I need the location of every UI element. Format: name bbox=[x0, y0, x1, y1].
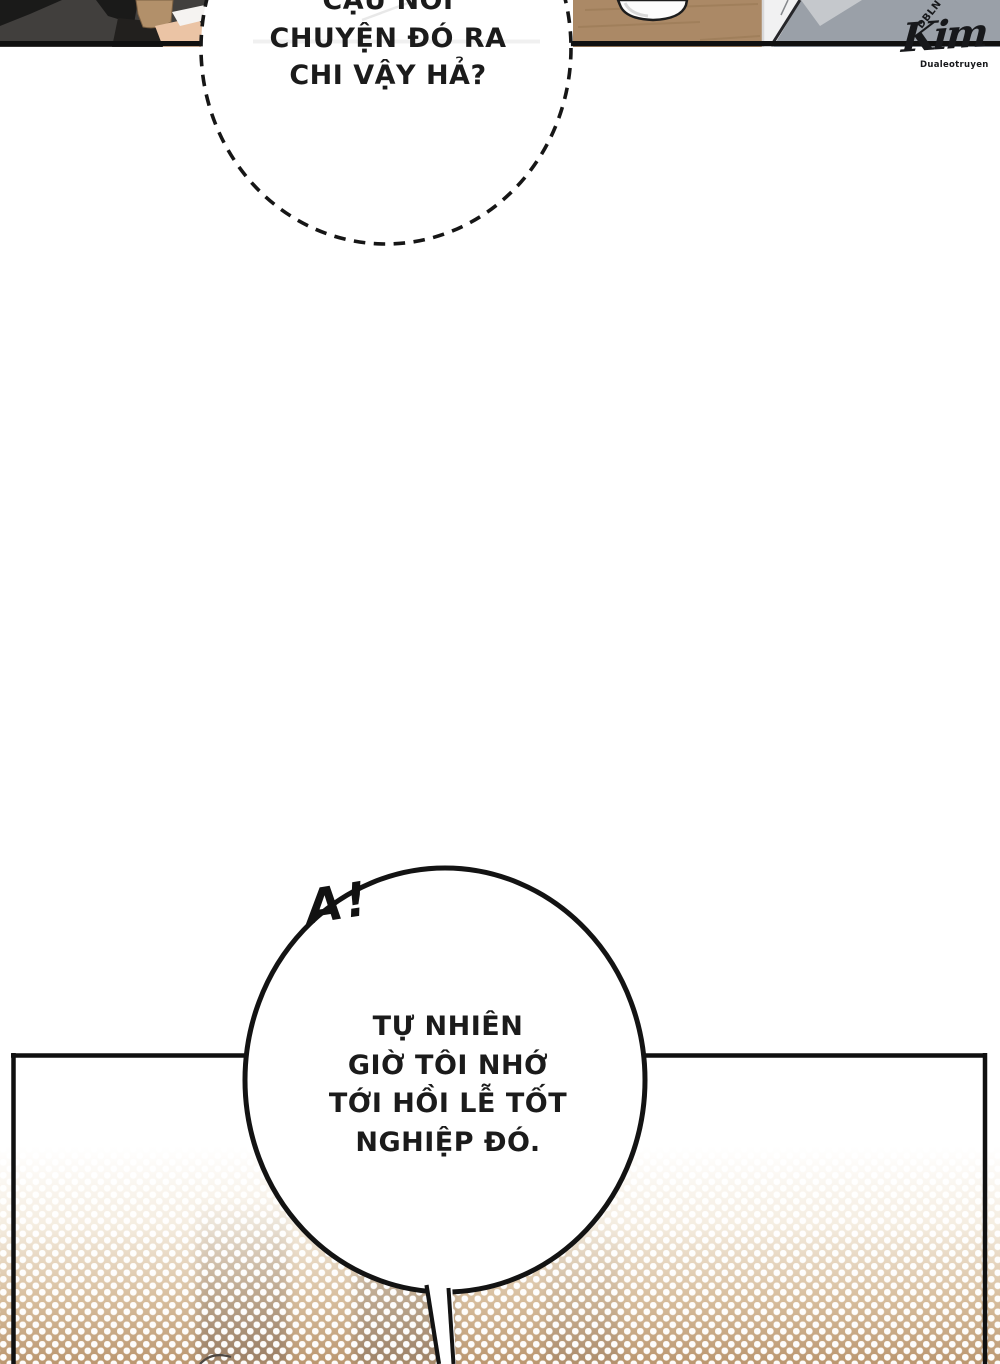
speech-line: CHUYỆN ĐÓ RA bbox=[216, 20, 560, 58]
speech-line: CHI VẬY HẢ? bbox=[216, 57, 560, 95]
main-bubble-text: TỰ NHIÊN GIỜ TÔI NHỚ TỚI HỒI LỄ TỐT NGHI… bbox=[248, 1008, 648, 1162]
head-silhouette-arc bbox=[200, 1355, 231, 1364]
watermark-site: Dualeotruyen bbox=[920, 60, 989, 70]
speech-line: NGHIỆP ĐÓ. bbox=[248, 1124, 648, 1163]
speech-line: TỚI HỒI LỄ TỐT bbox=[248, 1085, 648, 1124]
whisper-bubble-text: CẬU NÓI CHUYỆN ĐÓ RA CHI VẬY HẢ? bbox=[216, 0, 560, 95]
watermark-logo: Kim bbox=[900, 13, 987, 59]
comic-page: CẬU NÓI CHUYỆN ĐÓ RA CHI VẬY HẢ? TỰ NHIÊ… bbox=[0, 0, 1000, 1364]
speech-line: GIỜ TÔI NHỚ bbox=[248, 1047, 648, 1086]
exclamation-sfx: A! bbox=[302, 871, 374, 935]
speech-line: CẬU NÓI bbox=[216, 0, 560, 20]
speech-line: TỰ NHIÊN bbox=[248, 1008, 648, 1047]
translator-watermark: DBLN Kim Dualeotruyen bbox=[898, 4, 1000, 74]
